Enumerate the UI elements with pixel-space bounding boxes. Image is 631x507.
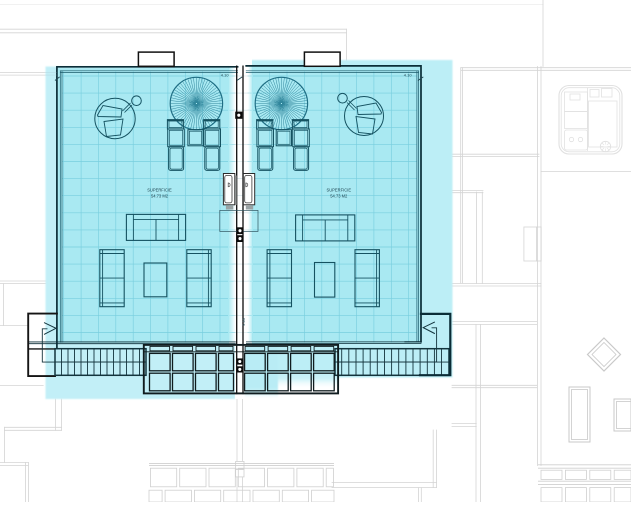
svg-text:SUPERFICIE: SUPERFICIE	[147, 188, 172, 193]
svg-text:54.73 M2: 54.73 M2	[330, 193, 348, 198]
svg-text:4.10: 4.10	[404, 73, 413, 78]
svg-text:SUPERFICIE: SUPERFICIE	[327, 188, 352, 193]
svg-text:4.10: 4.10	[221, 73, 230, 78]
svg-text:54.73 M2: 54.73 M2	[151, 193, 169, 198]
svg-text:9.40: 9.40	[241, 317, 246, 326]
